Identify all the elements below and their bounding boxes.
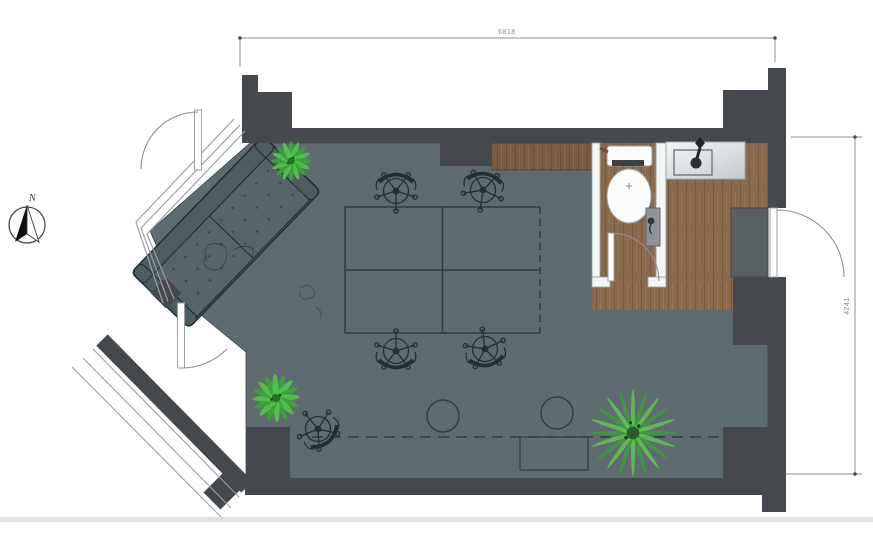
- floor-plan-drawing: 6818 4241 N: [0, 0, 873, 541]
- sink-icon: [666, 137, 745, 179]
- north-label: N: [28, 193, 37, 204]
- terrace-door-top-left: [141, 110, 202, 170]
- north-compass-icon: N: [9, 193, 45, 243]
- entry-mat: [731, 208, 768, 277]
- hand-wash-fixture: [646, 208, 660, 246]
- height-dimension-label: 4241: [844, 297, 851, 315]
- plant-icon: [271, 141, 311, 181]
- entry-door: [770, 208, 844, 277]
- page-shadow: [0, 517, 873, 522]
- kitchen-counter-grain: [492, 143, 592, 170]
- floor-plan-canvas: 6818 4241 N: [0, 0, 873, 541]
- width-dimension-label: 6818: [498, 29, 516, 36]
